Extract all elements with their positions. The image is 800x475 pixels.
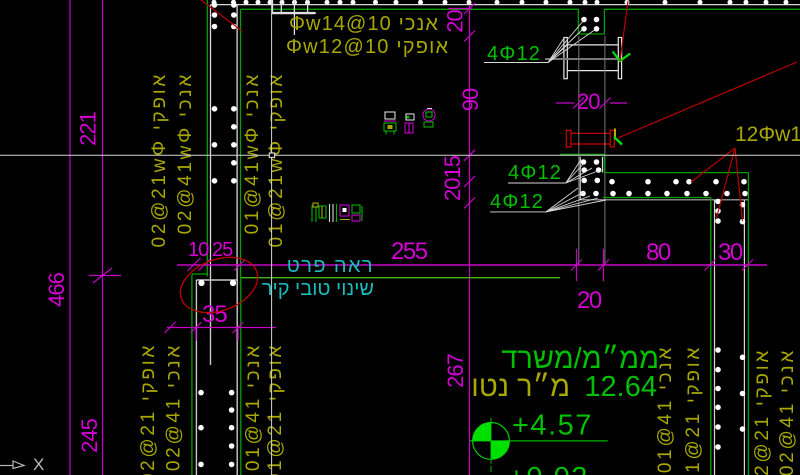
svg-text:80: 80 [646,239,671,266]
svg-text:466: 466 [44,272,69,306]
svg-text:01@21 אופקי: 01@21 אופקי [683,345,704,475]
svg-text:02@21wΦ אופקי: 02@21wΦ אופקי [149,72,170,247]
svg-text:255: 255 [391,238,428,265]
svg-text:+4.57: +4.57 [512,410,593,442]
svg-text:35: 35 [202,301,227,328]
svg-text:01@41 אנכי: 01@41 אנכי [655,345,676,473]
svg-text:שינוי טובי קיר: שינוי טובי קיר [262,278,374,300]
svg-text:01@21wΦ אופקי: 01@21wΦ אופקי [266,72,287,247]
svg-text:02@41 אנכי: 02@41 אנכי [777,348,798,475]
svg-text:20: 20 [577,89,600,114]
svg-text:Φw12@10 אופקי: Φw12@10 אופקי [286,36,449,58]
svg-text:02@21 אופקי: 02@21 אופקי [138,343,159,475]
svg-text:20: 20 [577,287,602,314]
svg-text:ראה פרט: ראה פרט [287,255,374,277]
svg-text:12Φw12: 12Φw12 [735,123,800,146]
svg-text:4Φ12: 4Φ12 [490,191,544,213]
svg-text:01@41 אנכי: 01@41 אנכי [243,343,264,471]
svg-text:221: 221 [76,111,101,145]
svg-text:4Φ12: 4Φ12 [487,43,541,65]
svg-text:02@41wΦ אנכי: 02@41wΦ אנכי [175,72,196,234]
svg-text:X: X [33,455,44,474]
svg-text:90: 90 [458,88,483,111]
svg-text:01@21 אופקי: 01@21 אופקי [265,343,286,475]
svg-text:12.64: 12.64 [584,371,657,403]
svg-text:30: 30 [718,239,743,266]
svg-text:2015: 2015 [440,155,465,201]
svg-text:10: 10 [188,239,209,261]
svg-text:4Φ12: 4Φ12 [508,162,562,184]
svg-text:01@41wΦ אנכי: 01@41wΦ אנכי [242,72,263,234]
svg-text:Φw14@10 אנכי: Φw14@10 אנכי [289,13,439,35]
svg-text:245: 245 [77,418,102,452]
svg-text:20: 20 [443,10,468,33]
svg-text:267: 267 [443,353,468,387]
svg-text:+0.02: +0.02 [508,462,589,475]
svg-text:02@21 אופקי: 02@21 אופקי [752,348,773,475]
svg-text:02@41 אנכי: 02@41 אנכי [164,343,185,471]
svg-text:מ״ר נטו: מ״ר נטו [471,371,570,403]
